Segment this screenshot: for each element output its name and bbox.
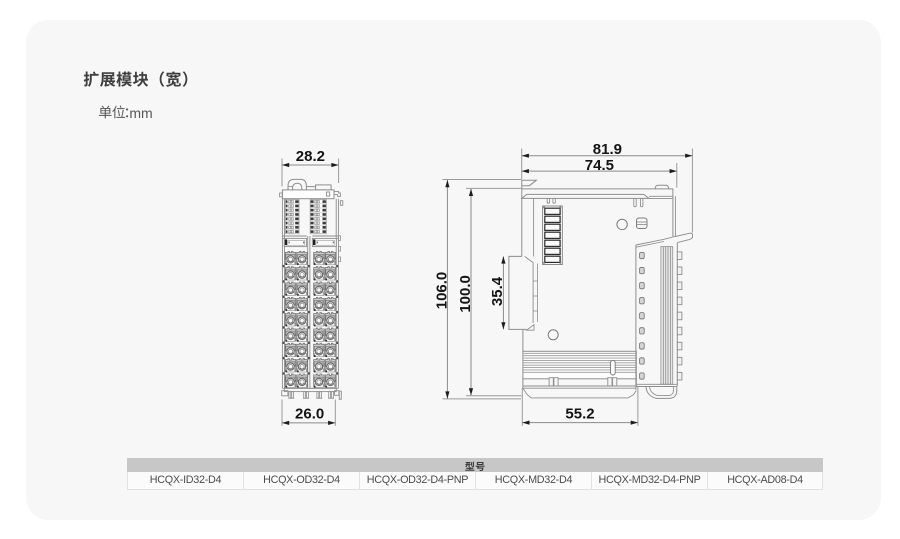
svg-text:35.4: 35.4 (489, 276, 506, 306)
svg-text:28.2: 28.2 (296, 148, 325, 165)
svg-text:26.0: 26.0 (295, 406, 324, 423)
svg-text:81.9: 81.9 (593, 141, 622, 158)
svg-text:100.0: 100.0 (457, 275, 474, 313)
svg-text:74.5: 74.5 (585, 157, 614, 174)
svg-text:55.2: 55.2 (565, 405, 594, 422)
svg-text:106.0: 106.0 (433, 272, 450, 310)
